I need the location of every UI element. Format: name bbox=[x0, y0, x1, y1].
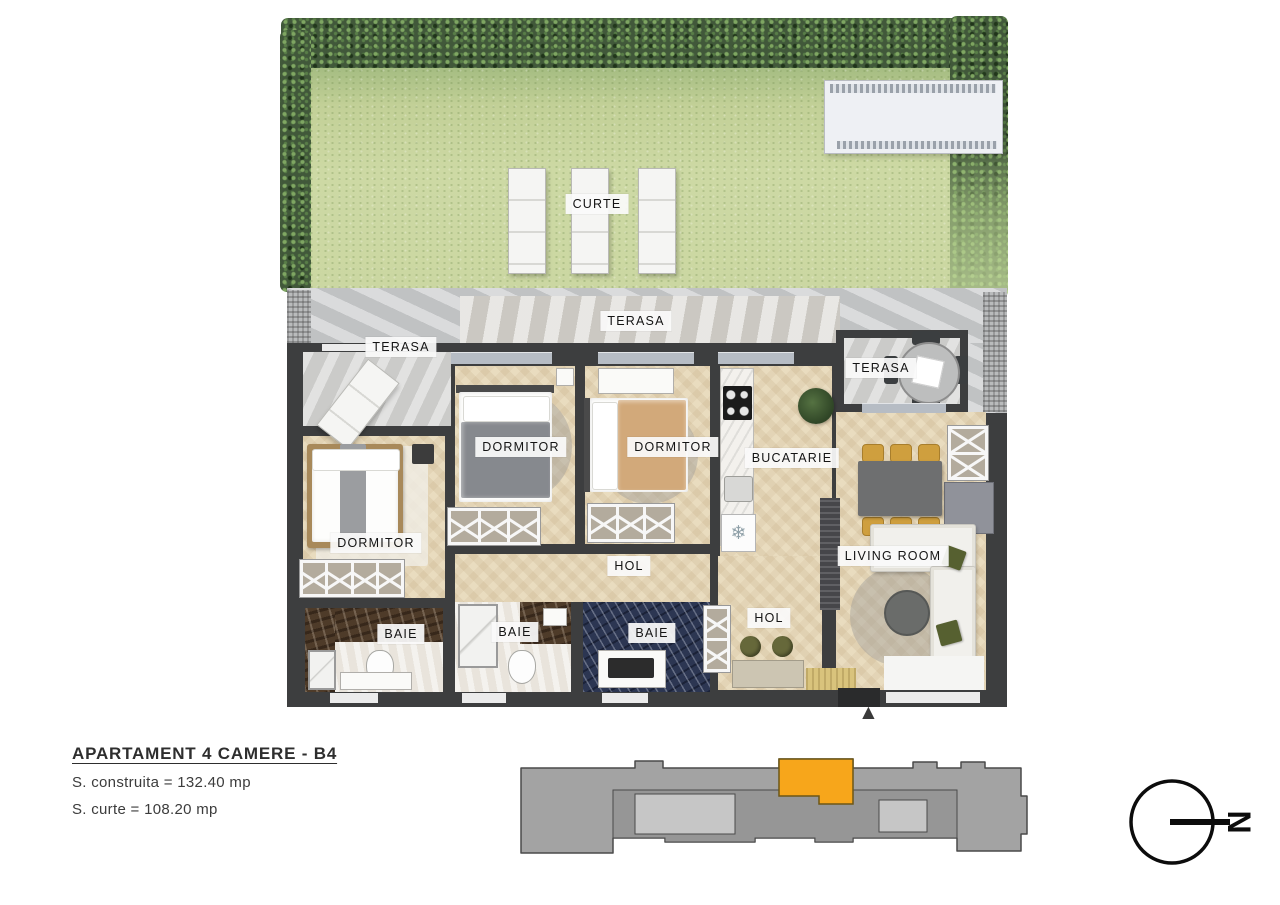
wardrobe-panel bbox=[619, 507, 644, 539]
gravel-strip-right bbox=[983, 292, 1007, 412]
bathroom-vanity bbox=[340, 672, 412, 690]
coffee-table bbox=[884, 590, 930, 636]
wardrobe-panel bbox=[646, 507, 671, 539]
cabinet-panel bbox=[707, 609, 727, 638]
compass: N bbox=[1124, 768, 1254, 872]
label-curte: CURTE bbox=[566, 194, 629, 214]
plant bbox=[798, 388, 834, 424]
window bbox=[462, 693, 506, 703]
entry-bench bbox=[732, 660, 804, 688]
sun-lounger bbox=[638, 168, 676, 274]
label-terasa-mid: TERASA bbox=[600, 311, 671, 331]
window bbox=[602, 693, 648, 703]
doormat bbox=[806, 668, 856, 690]
info-block: APARTAMENT 4 CAMERE - B4 S. construita =… bbox=[72, 744, 402, 818]
wardrobe-panel bbox=[328, 563, 350, 594]
nightstand bbox=[412, 444, 434, 464]
bathroom-sink bbox=[543, 608, 567, 626]
vanity-counter bbox=[608, 658, 654, 678]
window bbox=[886, 692, 980, 703]
label-terasa-right: TERASA bbox=[845, 358, 916, 378]
hedge-top bbox=[281, 18, 1007, 68]
bathroom-cabinet bbox=[704, 606, 730, 672]
wardrobe-panel bbox=[481, 511, 508, 542]
sun-lounger bbox=[508, 168, 546, 274]
label-terasa-left: TERASA bbox=[365, 337, 436, 357]
hedge-left bbox=[280, 30, 311, 292]
building-footprint bbox=[517, 754, 1039, 856]
apartment-title: APARTAMENT 4 CAMERE - B4 bbox=[72, 744, 402, 764]
wardrobe bbox=[448, 508, 540, 545]
terrace-door bbox=[862, 403, 946, 413]
kitchen-sink bbox=[724, 476, 753, 502]
bed-pillow bbox=[312, 449, 400, 471]
hedge-right-light bbox=[950, 16, 1008, 298]
wardrobe-panel bbox=[354, 563, 376, 594]
floorplan-page: ❄ ▲ bbox=[0, 0, 1280, 905]
entrance-arrow-icon: ▲ bbox=[858, 702, 879, 723]
fridge: ❄ bbox=[721, 514, 756, 552]
bed-pillow bbox=[592, 402, 618, 490]
compass-letter: N bbox=[1221, 810, 1254, 833]
label-baie-mid: BAIE bbox=[491, 622, 538, 642]
garden-wall-structure bbox=[824, 80, 1003, 154]
wardrobe bbox=[300, 560, 404, 597]
cooktop bbox=[723, 386, 752, 420]
label-dormitor-left: DORMITOR bbox=[330, 533, 421, 553]
compass-needle bbox=[1170, 819, 1230, 825]
sofa bbox=[930, 566, 976, 666]
area-yard-text: S. curte = 108.20 mp bbox=[72, 801, 402, 818]
pouf bbox=[740, 636, 761, 657]
wardrobe-panel bbox=[510, 511, 537, 542]
sun-lounger bbox=[571, 168, 609, 274]
wall-hatch-top bbox=[830, 84, 996, 93]
label-hol-mid: HOL bbox=[607, 556, 650, 576]
pouf bbox=[772, 636, 793, 657]
glass-facade bbox=[451, 352, 840, 364]
desk bbox=[598, 368, 674, 394]
shower bbox=[308, 650, 336, 690]
area-built-text: S. construita = 132.40 mp bbox=[72, 774, 402, 791]
label-dormitor-mid: DORMITOR bbox=[475, 437, 566, 457]
shelf-panel bbox=[951, 429, 985, 452]
wardrobe-panel bbox=[379, 563, 401, 594]
wall-hatch-bottom bbox=[837, 141, 997, 149]
wardrobe-panel bbox=[451, 511, 478, 542]
toilet bbox=[508, 650, 536, 684]
label-baie-right: BAIE bbox=[628, 623, 675, 643]
shelf-unit bbox=[948, 426, 988, 480]
hol-mid-floor bbox=[455, 554, 710, 602]
wardrobe bbox=[588, 504, 674, 542]
window-bay bbox=[884, 656, 984, 690]
label-dormitor-right: DORMITOR bbox=[627, 437, 718, 457]
wardrobe-panel bbox=[591, 507, 616, 539]
label-baie-left: BAIE bbox=[377, 624, 424, 644]
building-court-right bbox=[879, 800, 927, 832]
label-living-room: LIVING ROOM bbox=[838, 546, 949, 566]
window bbox=[330, 693, 378, 703]
snowflake-icon: ❄ bbox=[731, 524, 747, 543]
wall-pier bbox=[552, 350, 598, 366]
label-bucatarie: BUCATARIE bbox=[745, 448, 839, 468]
wall-pier bbox=[794, 350, 842, 366]
bed-duvet bbox=[461, 422, 550, 498]
cabinet-panel bbox=[707, 641, 727, 670]
bed-pillow bbox=[463, 396, 550, 422]
wall-pier bbox=[694, 350, 718, 366]
wardrobe-panel bbox=[303, 563, 325, 594]
dining-table bbox=[858, 461, 942, 516]
shelf-panel bbox=[951, 455, 985, 478]
building-court-left bbox=[635, 794, 735, 834]
label-hol-right: HOL bbox=[747, 608, 790, 628]
nightstand bbox=[556, 368, 574, 386]
